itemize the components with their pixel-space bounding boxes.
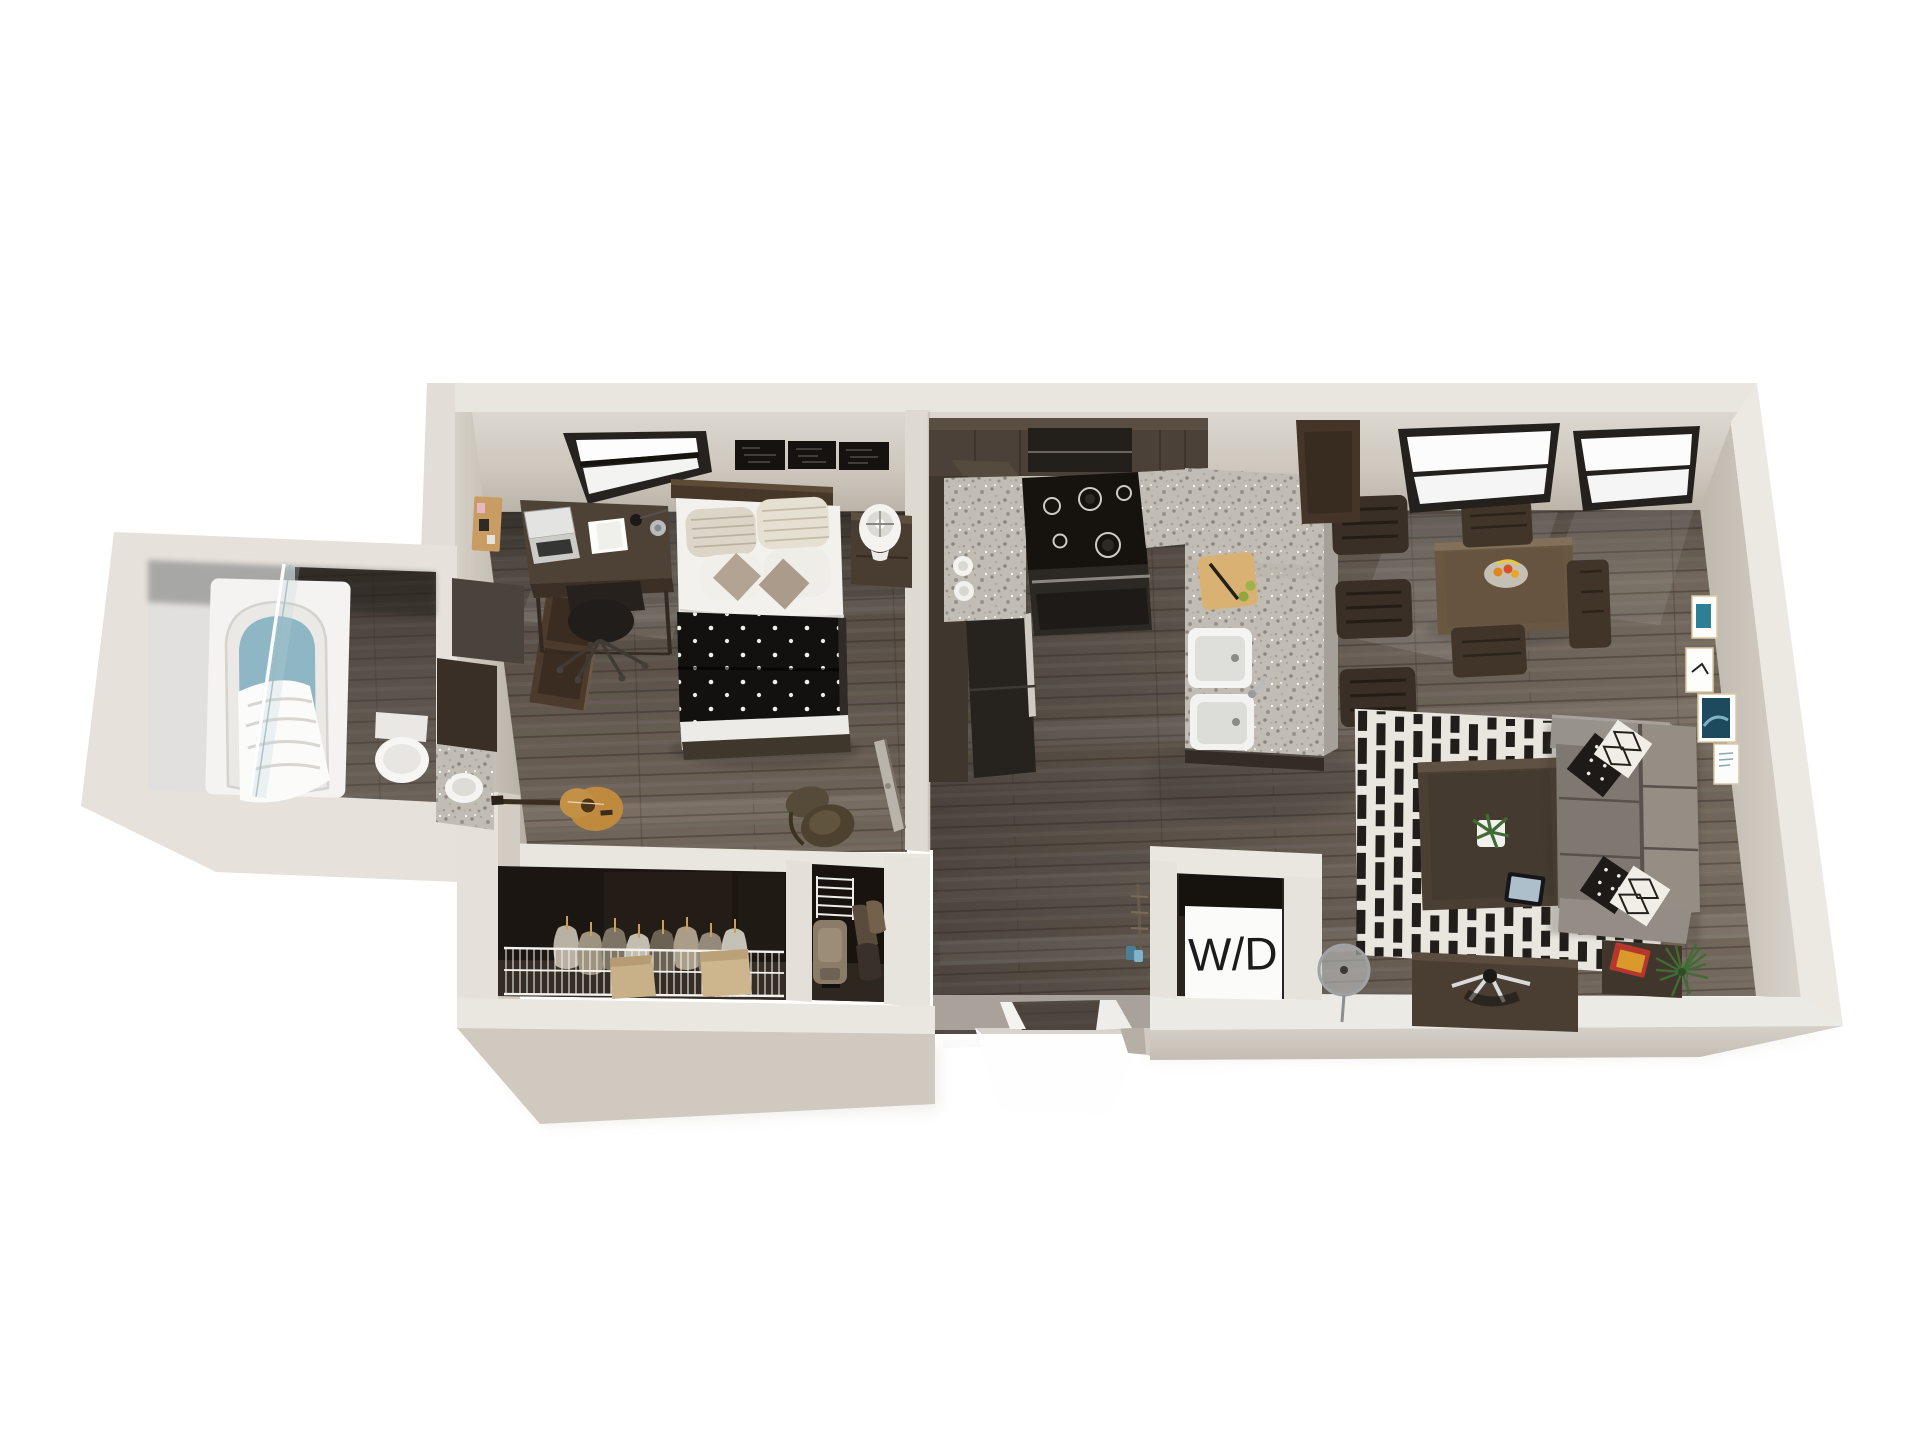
svg-text:W/D: W/D (1188, 927, 1278, 981)
